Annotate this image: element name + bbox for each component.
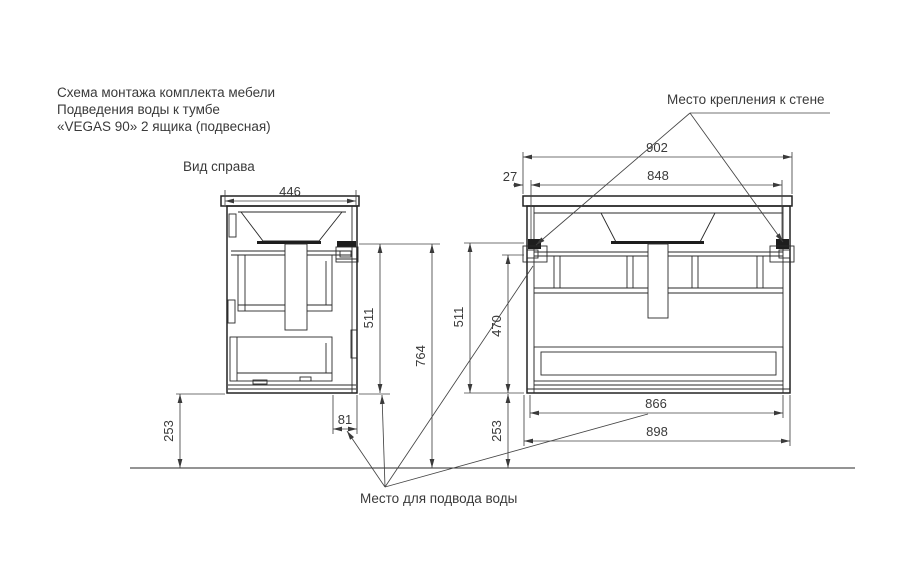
dim-front-inner-height: 470 (489, 315, 504, 337)
assembly-drawing: Схема монтажа комплекта мебели Подведени… (0, 0, 900, 568)
front-sink-basin (534, 213, 783, 244)
dim-front-bottom-outer-width: 898 (646, 424, 668, 439)
side-wall-bracket (336, 241, 358, 262)
wall-mount-label: Место крепления к стене (667, 92, 825, 107)
wall-mount-annotation: Место крепления к стене (536, 92, 830, 245)
dim-side-floor-gap: 253 (161, 420, 176, 442)
side-view (221, 196, 359, 393)
dim-front-cabinet-height: 511 (451, 307, 466, 328)
side-slot-middle (228, 300, 235, 323)
side-view-label: Вид справа (183, 159, 255, 174)
side-slot-top (229, 214, 236, 237)
dim-front-bracket-inset: 27 (503, 169, 517, 184)
dim-front-bottom-inner-width: 866 (645, 396, 667, 411)
dim-side-mount-height: 764 (413, 345, 428, 367)
dim-front-floor-gap: 253 (489, 420, 504, 442)
drawing-sheet: Схема монтажа комплекта мебели Подведени… (0, 0, 900, 568)
side-lower-drawer (230, 337, 332, 381)
title-line-1: Схема монтажа комплекта мебели (57, 85, 275, 100)
front-countertop (523, 196, 792, 206)
front-bottom-rails (527, 385, 790, 389)
water-supply-label: Место для подвода воды (360, 491, 517, 506)
front-drain-pipe (648, 244, 668, 318)
dim-side-cabinet-height: 511 (361, 308, 376, 329)
front-view (523, 196, 794, 393)
title-block: Схема монтажа комплекта мебели Подведени… (57, 85, 275, 134)
title-line-3: «VEGAS 90» 2 ящика (подвесная) (57, 119, 271, 134)
dim-side-top-width: 446 (279, 184, 301, 199)
side-sink-basin (238, 212, 346, 244)
side-bottom-rails (228, 377, 356, 389)
dim-side-water-offset: 81 (338, 412, 352, 427)
side-drain-pipe (285, 244, 307, 330)
dim-front-bracket-span: 848 (647, 168, 669, 183)
water-supply-annotation: Место для подвода воды (347, 266, 648, 506)
title-line-2: Подведения воды к тумбе (57, 102, 220, 117)
front-view-dimensions: 902 848 27 511 470 253 866 898 (451, 140, 792, 468)
front-lower-drawer (534, 347, 783, 381)
